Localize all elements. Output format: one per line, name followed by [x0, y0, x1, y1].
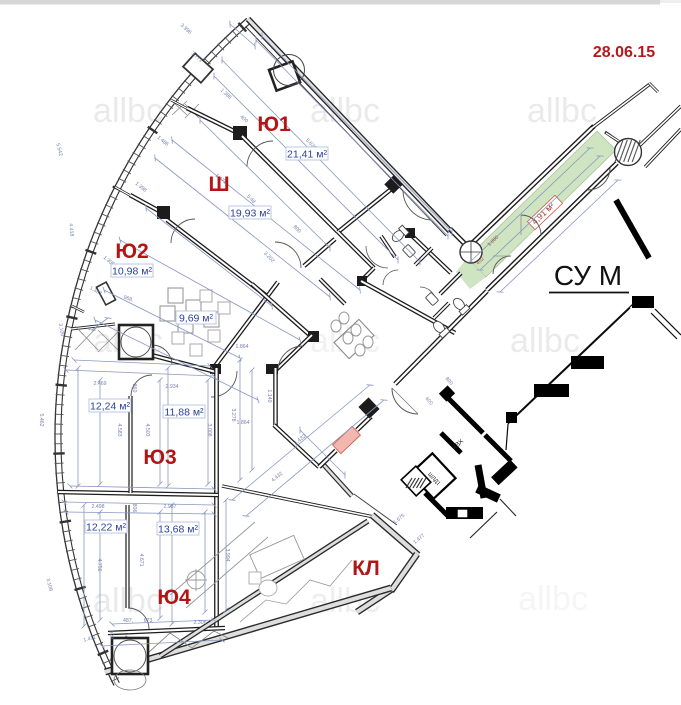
svg-text:3.278: 3.278 [230, 409, 236, 422]
svg-text:1.864: 1.864 [236, 344, 249, 350]
svg-text:12,24 м²: 12,24 м² [90, 401, 130, 413]
svg-text:12,22 м²: 12,22 м² [86, 522, 126, 534]
svg-text:10,98 м²: 10,98 м² [112, 266, 152, 278]
svg-text:1.864: 1.864 [237, 420, 250, 426]
svg-text:19,93 м²: 19,93 м² [230, 208, 270, 220]
svg-text:21,41 м²: 21,41 м² [287, 149, 327, 161]
svg-text:28.06.15: 28.06.15 [593, 44, 655, 61]
svg-text:allbc: allbc [527, 92, 597, 130]
svg-text:673: 673 [144, 618, 153, 624]
svg-text:allbc: allbc [510, 322, 580, 360]
svg-text:2.306: 2.306 [194, 620, 207, 626]
svg-text:2.934: 2.934 [166, 384, 179, 390]
svg-text:860: 860 [131, 384, 137, 393]
svg-text:allbc: allbc [518, 580, 588, 618]
svg-text:КЛ: КЛ [352, 557, 380, 580]
svg-text:2.469: 2.469 [94, 381, 107, 387]
svg-text:1.140: 1.140 [266, 390, 272, 403]
svg-text:9,69 м²: 9,69 м² [179, 313, 214, 325]
svg-text:2.498: 2.498 [92, 504, 105, 510]
svg-text:806: 806 [131, 504, 137, 513]
svg-text:Ю3: Ю3 [143, 446, 176, 469]
svg-text:3.008: 3.008 [206, 424, 212, 437]
svg-text:11,88 м²: 11,88 м² [164, 407, 204, 419]
svg-text:Ш: Ш [208, 173, 229, 196]
svg-text:Ю1: Ю1 [257, 113, 291, 136]
svg-text:13,68 м²: 13,68 м² [158, 524, 198, 536]
svg-text:СУ М: СУ М [554, 260, 622, 291]
svg-text:4.418: 4.418 [67, 223, 74, 237]
svg-text:4.583: 4.583 [116, 424, 122, 437]
svg-text:487,: 487, [123, 618, 133, 624]
svg-text:5.462: 5.462 [38, 414, 44, 427]
svg-text:4.671: 4.671 [138, 554, 144, 567]
svg-text:4.503: 4.503 [144, 424, 150, 437]
svg-text:Ю2: Ю2 [115, 240, 148, 263]
svg-text:Ю4: Ю4 [157, 586, 191, 609]
svg-text:4.756: 4.756 [96, 559, 102, 572]
svg-text:2.937: 2.937 [164, 504, 177, 510]
svg-text:3.994: 3.994 [224, 549, 230, 562]
